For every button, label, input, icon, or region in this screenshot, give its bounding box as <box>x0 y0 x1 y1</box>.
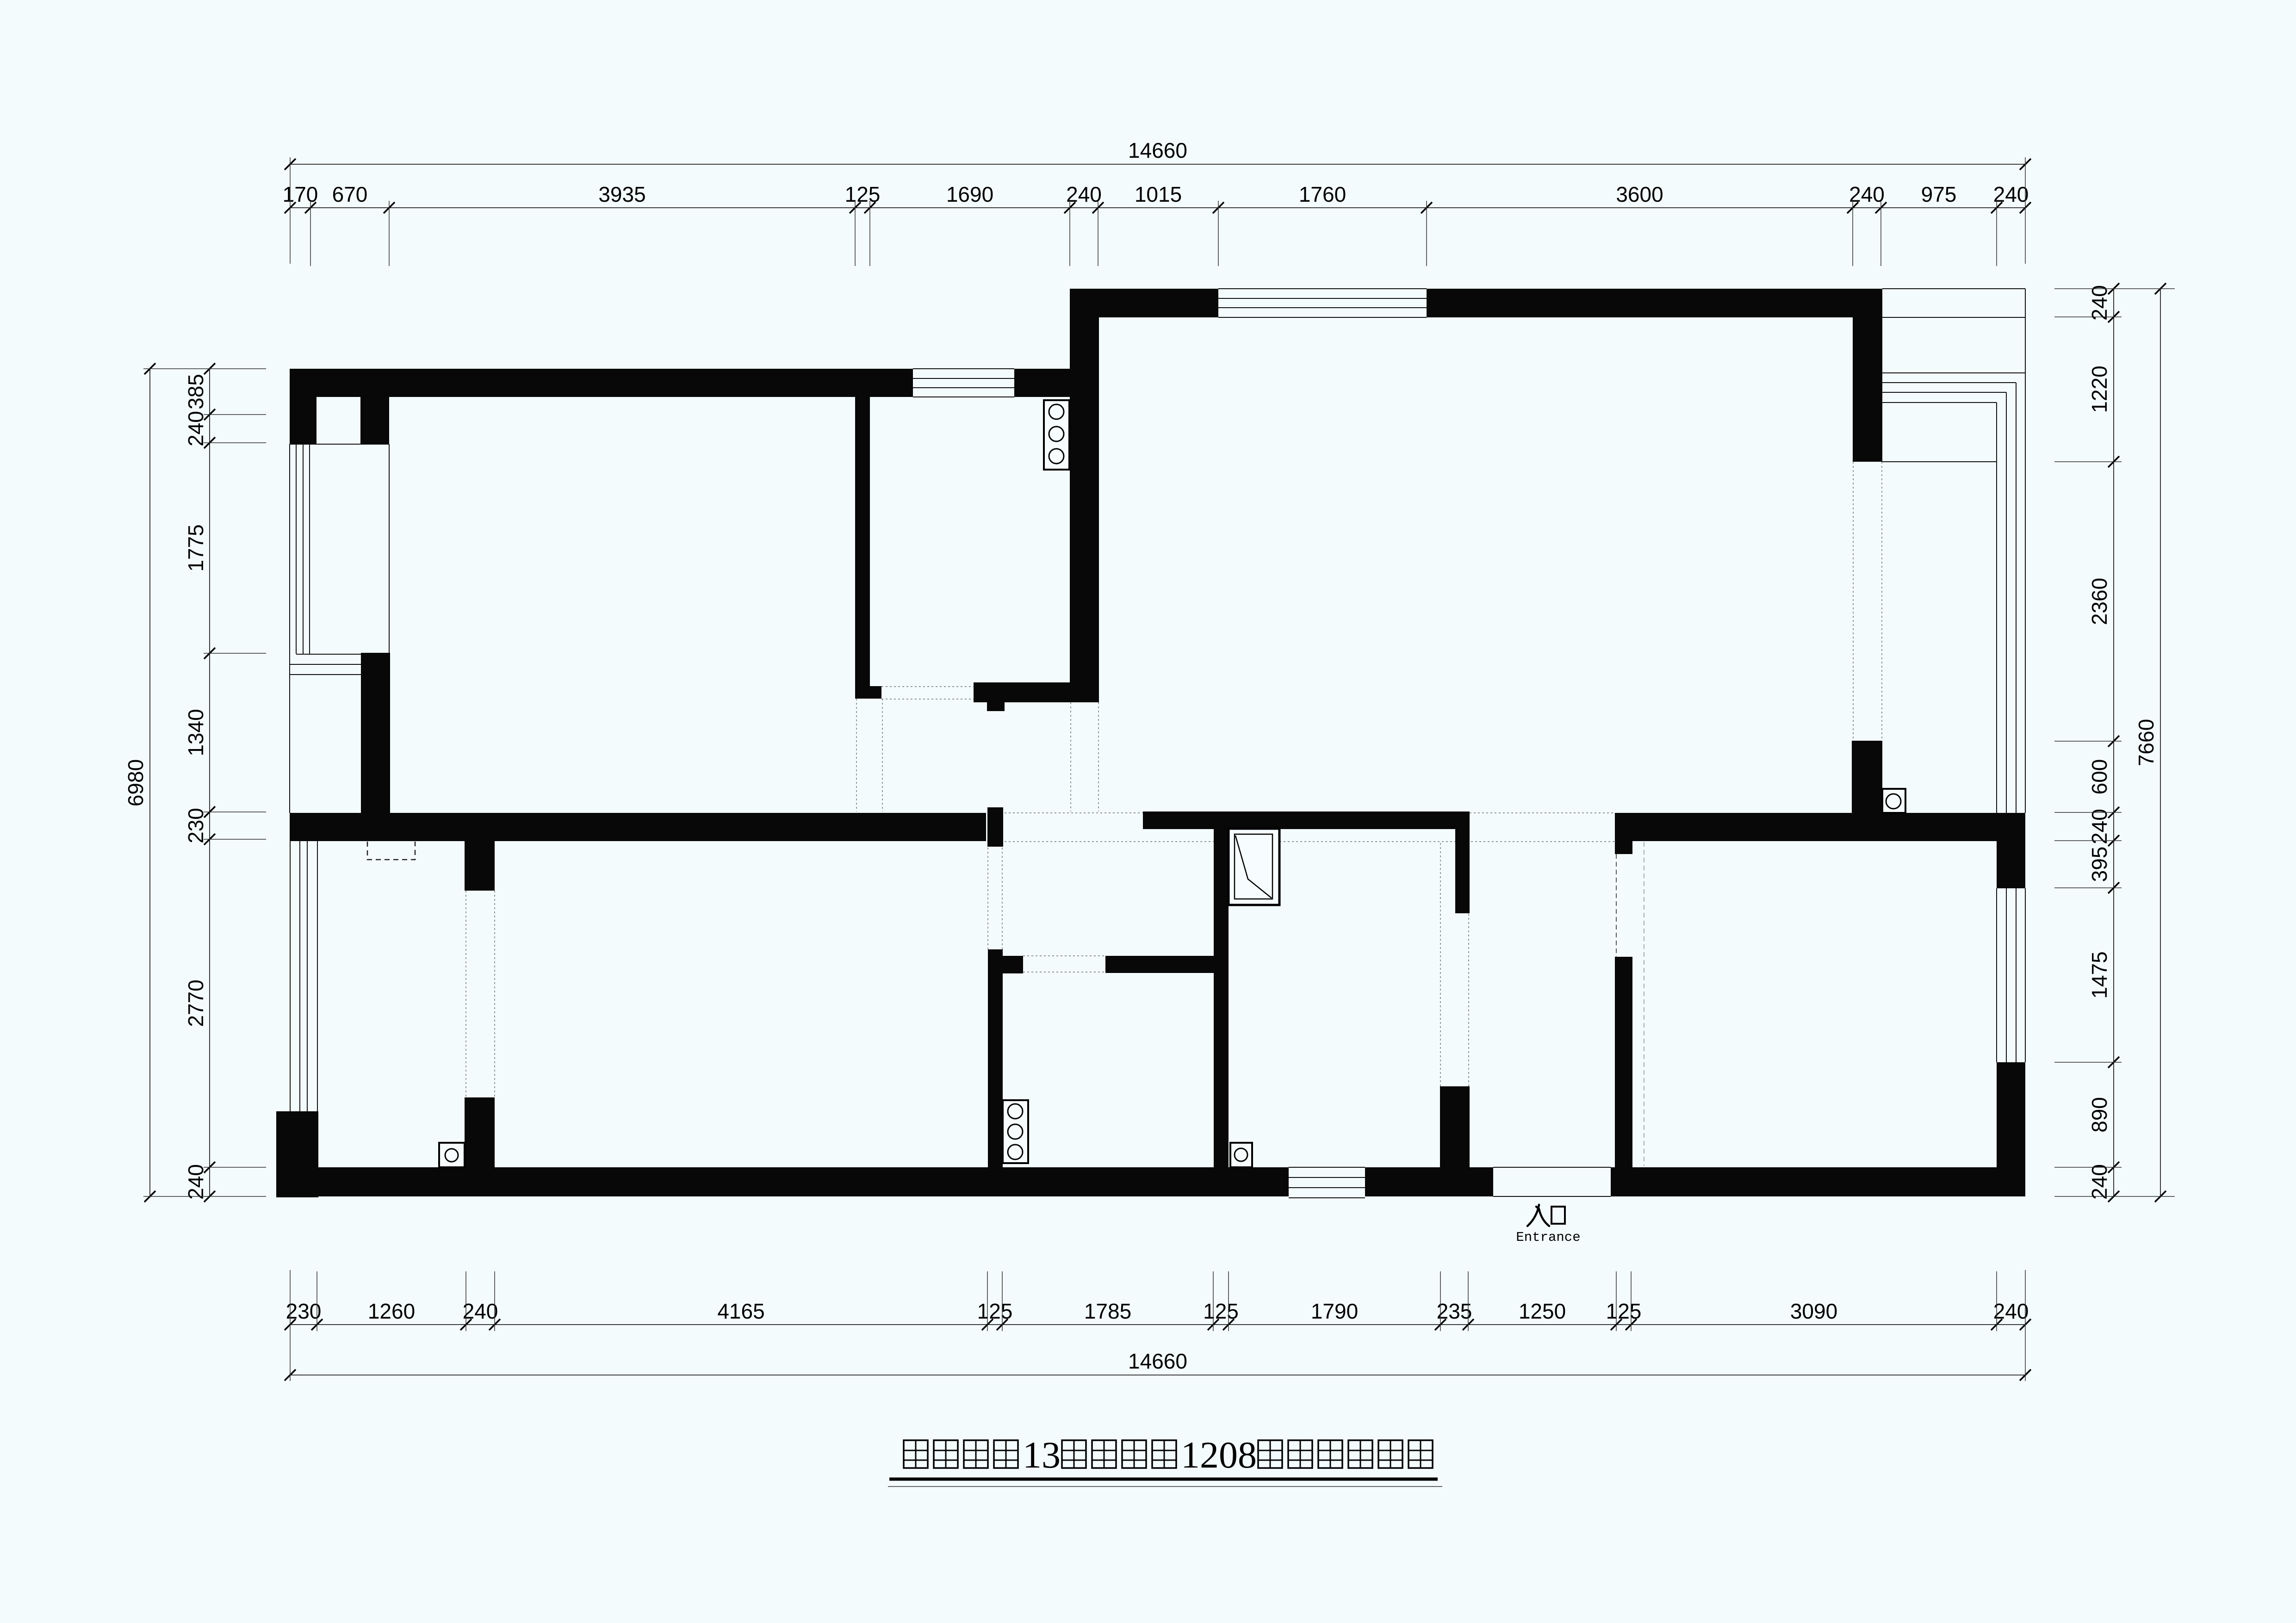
svg-text:2360: 2360 <box>2087 578 2111 625</box>
svg-text:240: 240 <box>1993 182 2029 206</box>
svg-text:385: 385 <box>184 374 208 409</box>
svg-text:125: 125 <box>845 182 881 206</box>
svg-text:240: 240 <box>184 1164 208 1200</box>
svg-text:240: 240 <box>463 1299 498 1323</box>
svg-text:125: 125 <box>977 1299 1013 1323</box>
svg-text:890: 890 <box>2087 1097 2111 1133</box>
svg-text:1250: 1250 <box>1519 1299 1566 1323</box>
svg-text:1208: 1208 <box>1181 1434 1257 1476</box>
svg-text:1260: 1260 <box>368 1299 415 1323</box>
svg-text:395: 395 <box>2087 847 2111 882</box>
svg-text:230: 230 <box>286 1299 322 1323</box>
svg-text:6980: 6980 <box>124 759 148 806</box>
svg-text:3090: 3090 <box>1790 1299 1837 1323</box>
svg-text:600: 600 <box>2087 759 2111 795</box>
svg-text:13: 13 <box>1023 1434 1061 1476</box>
svg-text:125: 125 <box>1606 1299 1642 1323</box>
svg-text:125: 125 <box>1203 1299 1239 1323</box>
svg-text:670: 670 <box>332 182 368 206</box>
svg-text:1790: 1790 <box>1311 1299 1358 1323</box>
svg-text:1775: 1775 <box>184 524 208 571</box>
svg-text:3935: 3935 <box>598 182 645 206</box>
svg-text:2770: 2770 <box>184 979 208 1027</box>
svg-text:14660: 14660 <box>1128 1349 1187 1373</box>
svg-text:Entrance: Entrance <box>1516 1230 1580 1245</box>
svg-text:240: 240 <box>2087 1164 2111 1200</box>
svg-text:975: 975 <box>1921 182 1957 206</box>
svg-text:1760: 1760 <box>1299 182 1346 206</box>
svg-text:1015: 1015 <box>1135 182 1182 206</box>
svg-text:230: 230 <box>184 808 208 843</box>
svg-text:240: 240 <box>184 411 208 446</box>
svg-text:1690: 1690 <box>946 182 993 206</box>
svg-text:240: 240 <box>1993 1299 2029 1323</box>
svg-text:4165: 4165 <box>717 1299 764 1323</box>
svg-text:170: 170 <box>283 182 318 206</box>
svg-text:1475: 1475 <box>2087 951 2111 998</box>
svg-text:1220: 1220 <box>2087 365 2111 413</box>
svg-text:3600: 3600 <box>1616 182 1663 206</box>
svg-text:240: 240 <box>2087 809 2111 844</box>
svg-text:14660: 14660 <box>1128 138 1187 162</box>
svg-text:240: 240 <box>2087 285 2111 321</box>
svg-text:1340: 1340 <box>184 709 208 756</box>
svg-text:1785: 1785 <box>1084 1299 1131 1323</box>
svg-text:240: 240 <box>1849 182 1885 206</box>
svg-text:7660: 7660 <box>2134 719 2158 766</box>
svg-text:240: 240 <box>1066 182 1102 206</box>
svg-text:235: 235 <box>1437 1299 1472 1323</box>
